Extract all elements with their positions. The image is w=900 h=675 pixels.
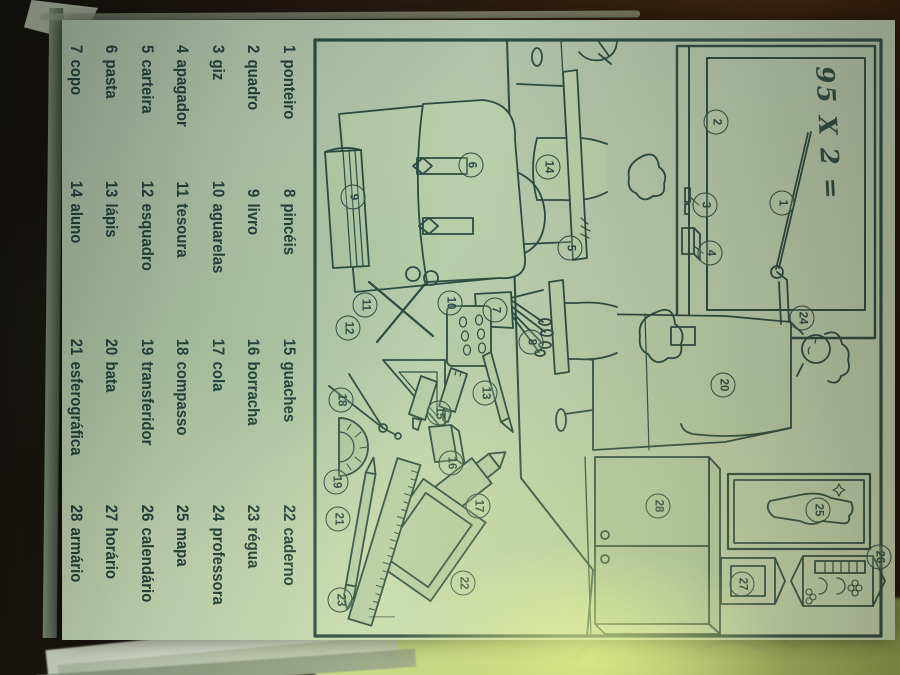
list-item: 10aguarelas <box>201 178 237 319</box>
scene-marker-22: 22 <box>451 571 476 596</box>
list-item: 9livro <box>236 178 272 319</box>
scene-marker-3: 3 <box>693 193 718 218</box>
list-item: 28armário <box>59 502 95 643</box>
list-item: 1ponteiro <box>272 34 308 175</box>
word-list-column-3: 15guaches 16borracha 17cola 18compasso 1… <box>59 336 308 496</box>
list-item: 20bata <box>94 336 130 477</box>
word-list-column-4: 22caderno 23régua 24professora 25mapa 26… <box>59 502 308 662</box>
list-item: 7copo <box>59 34 95 175</box>
scene-marker-13: 13 <box>473 381 498 406</box>
scene-marker-20: 20 <box>711 373 736 398</box>
word-list: 1ponteiro 2quadro 3giz 4apagador 5cartei… <box>62 20 307 640</box>
list-item: 3giz <box>201 34 237 175</box>
scene-marker-5: 5 <box>558 236 583 261</box>
list-item: 14aluno <box>59 178 95 319</box>
list-item: 25mapa <box>165 502 201 643</box>
scene-marker-19: 19 <box>324 470 349 495</box>
list-item: 16borracha <box>236 336 272 477</box>
list-item: 24professora <box>201 502 237 643</box>
list-item: 11tesoura <box>165 178 201 319</box>
list-item: 6pasta <box>94 34 130 175</box>
scene-marker-25: 25 <box>806 498 831 523</box>
scene-marker-21: 21 <box>326 507 351 532</box>
worksheet-page: 95 X 2 = 1 2 3 4 5 6 7 8 9 10 11 12 13 1… <box>62 20 895 640</box>
list-item: 12esquadro <box>130 178 166 319</box>
list-item: 17cola <box>201 336 237 477</box>
scene-marker-23: 23 <box>328 588 353 613</box>
list-item: 23régua <box>236 502 272 643</box>
list-item: 27horário <box>94 502 130 643</box>
scene-marker-2: 2 <box>704 110 729 135</box>
scene-marker-1: 1 <box>770 191 795 216</box>
word-list-column-1: 1ponteiro 2quadro 3giz 4apagador 5cartei… <box>59 34 308 194</box>
list-item: 2quadro <box>236 34 272 175</box>
list-item: 26calendário <box>130 502 166 643</box>
scene-marker-15: 15 <box>427 401 452 426</box>
list-item: 21esferográfica <box>59 336 95 477</box>
scene-marker-17: 17 <box>466 494 491 519</box>
scene-marker-7: 7 <box>483 298 508 323</box>
list-item: 13lápis <box>94 178 130 319</box>
scene-marker-4: 4 <box>698 241 723 266</box>
list-item: 22caderno <box>272 502 308 643</box>
list-item: 19transferidor <box>130 336 166 477</box>
scene-marker-6: 6 <box>459 153 484 178</box>
word-list-column-2: 8pincéis 9livro 10aguarelas 11tesoura 12… <box>59 178 308 338</box>
scene-marker-18: 18 <box>329 388 354 413</box>
scene-marker-24: 24 <box>790 306 815 331</box>
scene-marker-27: 27 <box>730 572 755 597</box>
list-item: 4apagador <box>165 34 201 175</box>
list-item: 18compasso <box>165 336 201 477</box>
scene-marker-12: 12 <box>336 316 361 341</box>
scene-marker-10: 10 <box>438 291 463 316</box>
scene-marker-28: 28 <box>646 494 671 519</box>
scene-marker-16: 16 <box>439 451 464 476</box>
list-item: 15guaches <box>272 336 308 477</box>
scene-marker-26: 26 <box>867 545 892 570</box>
scene-marker-9: 9 <box>341 185 366 210</box>
scene-marker-8: 8 <box>519 330 544 355</box>
list-item: 5carteira <box>130 34 166 175</box>
list-item: 8pincéis <box>272 178 308 319</box>
scene-marker-11: 11 <box>353 293 378 318</box>
photo-scene: 95 X 2 = 1 2 3 4 5 6 7 8 9 10 11 12 13 1… <box>0 0 900 675</box>
scene-marker-14: 14 <box>536 155 561 180</box>
